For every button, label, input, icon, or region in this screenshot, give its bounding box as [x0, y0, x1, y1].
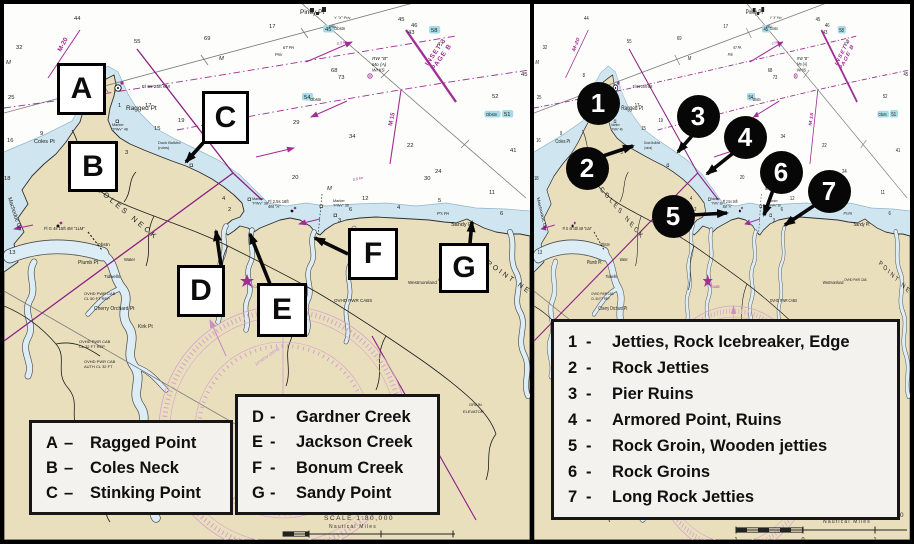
- legend-row: 7-Long Rock Jetties: [568, 488, 891, 507]
- legend-row: G-Sandy Point: [252, 484, 431, 503]
- number-marker-1: 1: [577, 82, 620, 125]
- legend-box-left-1: A–Ragged PointB–Coles NeckC–Stinking Poi…: [29, 420, 233, 515]
- label-box-e: E: [257, 283, 307, 337]
- label-box-g: G: [439, 243, 489, 293]
- legend-row: 3-Pier Ruins: [568, 385, 891, 404]
- legend-row: 6-Rock Groins: [568, 463, 891, 482]
- legend-box-right-1: 1-Jetties, Rock Icebreaker, Edge2-Rock J…: [551, 319, 900, 520]
- number-marker-2: 2: [566, 147, 609, 190]
- legend-row: E-Jackson Creek: [252, 433, 431, 452]
- legend-box-left-2: D-Gardner CreekE-Jackson CreekF-Bonum Cr…: [235, 394, 440, 515]
- legend-row: F-Bonum Creek: [252, 459, 431, 478]
- legend-row: C–Stinking Point: [46, 484, 224, 503]
- number-marker-6: 6: [760, 151, 803, 194]
- legend-row: B–Coles Neck: [46, 459, 224, 478]
- label-box-a: A: [57, 63, 106, 115]
- label-box-f: F: [348, 228, 398, 280]
- number-marker-5: 5: [652, 195, 695, 238]
- label-box-b: B: [68, 141, 118, 192]
- number-marker-3: 3: [677, 95, 720, 138]
- number-marker-7: 7: [808, 170, 851, 213]
- number-marker-4: 4: [724, 116, 767, 159]
- legend-row: 4-Armored Point, Ruins: [568, 411, 891, 430]
- label-box-d: D: [177, 265, 225, 317]
- chart-comparison-image: 44556917M32M25161813983171519134220M1263…: [0, 0, 914, 544]
- label-box-c: C: [202, 91, 249, 144]
- legend-row: 2-Rock Jetties: [568, 359, 891, 378]
- legend-row: A–Ragged Point: [46, 434, 224, 453]
- legend-row: 1-Jetties, Rock Icebreaker, Edge: [568, 333, 891, 352]
- legend-row: 5-Rock Groin, Wooden jetties: [568, 437, 891, 456]
- right-chart-panel: SCALE 1:80,000Nautical Miles101 12345671…: [534, 4, 910, 540]
- left-chart-panel: SCALE 1:80,000Nautical Miles012 ABCDEFGA…: [4, 4, 530, 540]
- legend-row: D-Gardner Creek: [252, 408, 431, 427]
